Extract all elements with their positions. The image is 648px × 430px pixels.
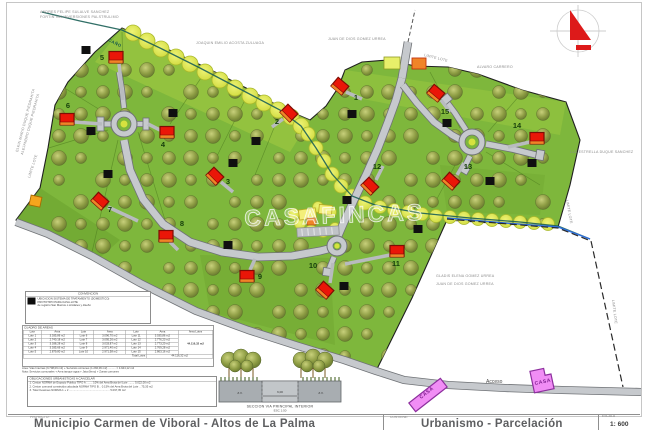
section-dim-right: Z.V. xyxy=(318,391,323,395)
treatment-marker xyxy=(252,137,261,145)
house-marker xyxy=(160,127,174,139)
treatment-marker xyxy=(528,159,537,167)
obligations-box: OBLIGACIONES URBANISTICAS A CANCELAR 1. … xyxy=(27,376,217,407)
contains-label: CONTIENE: xyxy=(390,416,408,419)
treatment-marker xyxy=(414,225,423,233)
treatment-system-icon xyxy=(28,298,36,305)
treatment-marker xyxy=(348,110,357,118)
contains-title: Urbanismo - Parcelación xyxy=(421,418,563,430)
house-marker xyxy=(60,114,74,126)
owner-label-top-left-1: ANDRES FELIPE SULALVE SANCHEZ xyxy=(40,10,110,14)
areas-table: CUADRO DE AREAS LoteAreaLoteAreaLoteArea… xyxy=(22,325,214,367)
owner-label-top-center: JOAQUIN EMILIO ACOSTA ZULUAGA xyxy=(196,41,264,45)
parcel-owner-label-1: GLADIS ELENA GOMEZ URREA xyxy=(436,274,495,278)
parcel-owner-label-2: JUAN DE DIOS GOMEZ URREA xyxy=(436,282,494,286)
house-marker xyxy=(390,246,404,258)
section-dim-center: 6,00 xyxy=(277,390,283,394)
plan-sheet: 123456789101112131415 ANDRES FELIPE SULA… xyxy=(0,0,648,430)
lot-number: 15 xyxy=(441,107,449,116)
limite-lote-label-right: LIMITE LOTE xyxy=(565,199,573,224)
treatment-marker xyxy=(87,127,96,135)
treatment-marker xyxy=(443,119,452,127)
lot-number: 12 xyxy=(373,162,381,171)
areas-table-grid: LoteAreaLoteAreaLoteAreaArea LotesLote 1… xyxy=(23,330,213,359)
compass-icon xyxy=(550,5,606,57)
treatment-marker xyxy=(224,241,233,249)
lot-number: 9 xyxy=(258,272,262,281)
project-title: Municipio Carmen de Viboral - Altos de L… xyxy=(34,418,315,430)
treatment-marker xyxy=(486,177,495,185)
areas-note-1: Area: Vias Internas (3.708,06 m2) + Serv… xyxy=(22,367,246,371)
legend-line-3: de registro San Marcos o similares y dis… xyxy=(38,304,110,307)
section-scale-caption: ESC 1:50 xyxy=(274,409,287,413)
gatehouse xyxy=(384,57,400,69)
lot-number: 14 xyxy=(513,121,522,130)
lot-number: 5 xyxy=(100,53,104,62)
owner-label-top-left-2: FORTIN 944 INVERSIONES PALSTRULIMO xyxy=(40,15,119,19)
owner-label-far-right: LUZ ESTRELLA DUQUE SANCHEZ xyxy=(570,150,634,154)
house-marker xyxy=(240,271,254,283)
scale-value: 1: 600 xyxy=(610,421,628,428)
access-road-label: Acceso xyxy=(486,379,503,385)
lot-number: 13 xyxy=(464,162,472,171)
limite-lote-label-entrance: LIMITE LOTE xyxy=(424,53,449,63)
treatment-marker xyxy=(340,282,349,290)
house-marker xyxy=(109,52,123,64)
titlebar-separator-2 xyxy=(598,414,599,430)
titlebar-divider xyxy=(8,414,640,415)
house-marker xyxy=(159,231,173,243)
lot-number: 11 xyxy=(392,259,400,268)
lot-number: 6 xyxy=(66,101,70,110)
owner-label-top-right: JUAN DE DIOS GOMEZ URREA xyxy=(328,37,386,41)
scale-label: ESCALA xyxy=(602,415,615,418)
lot-number: 7 xyxy=(108,205,112,214)
lot-number: 1 xyxy=(354,93,358,102)
lot-number: 2 xyxy=(275,117,279,126)
neighbor-parcel-boundary xyxy=(447,219,623,387)
lot-number: 10 xyxy=(309,261,317,270)
treatment-marker xyxy=(104,170,113,178)
treatment-marker xyxy=(229,159,238,167)
house-marker xyxy=(530,133,544,145)
lot-number: 3 xyxy=(226,177,230,186)
treatment-marker xyxy=(82,46,91,54)
limite-lote-label-east: LIMITE LOTE xyxy=(611,300,618,325)
areas-note-2: Nota: Servicios comunales + Area tanque … xyxy=(22,370,246,374)
lot-number: 8 xyxy=(180,219,184,228)
legend-convencion: CONVENCION UBICACION SISTEMA DE TRATAMIE… xyxy=(25,291,151,324)
section-dim-left: Z.V. xyxy=(237,391,242,395)
treatment-marker xyxy=(169,109,178,117)
obligation-item-3: 3. Total Cesiones NORMA 1 + 2 ..........… xyxy=(28,389,216,393)
limite-lote-label-left: LIMITE LOTE xyxy=(27,154,38,179)
titlebar-separator-1 xyxy=(383,414,384,430)
owner-label-right: ALVARO CARRERO xyxy=(477,65,513,69)
water-tank-icon xyxy=(29,195,42,207)
entrance-building xyxy=(412,58,426,69)
